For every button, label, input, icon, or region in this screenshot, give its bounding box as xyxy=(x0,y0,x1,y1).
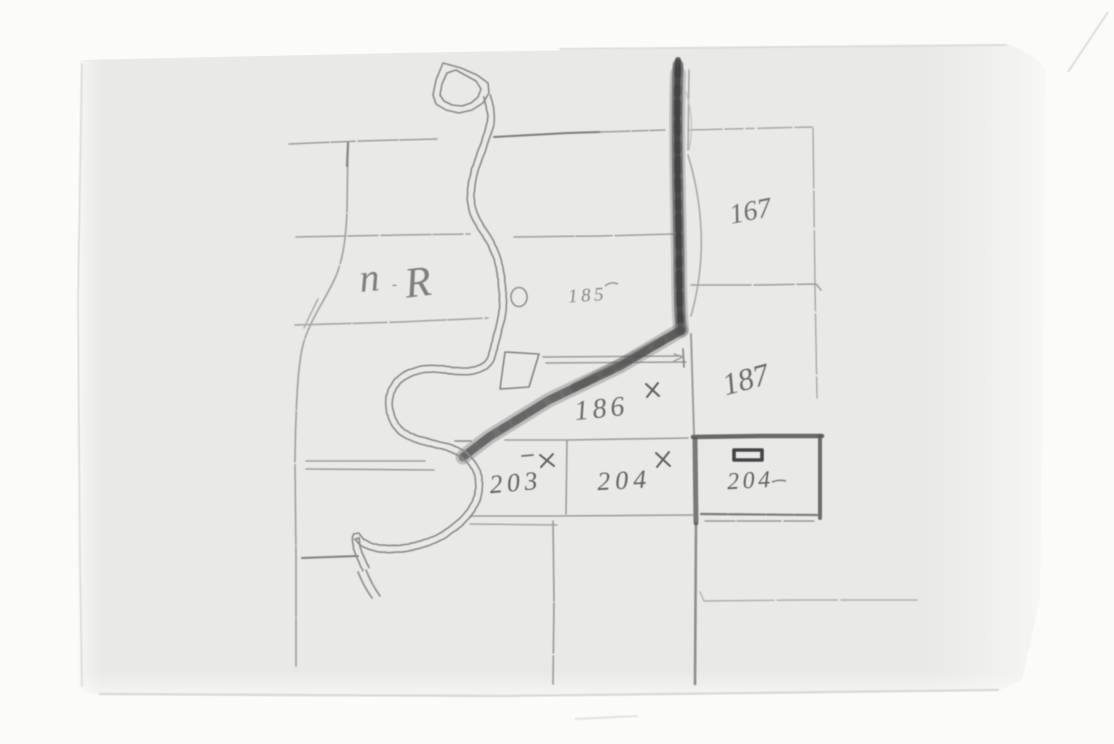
svg-text:n: n xyxy=(357,254,381,301)
svg-text:203: 203 xyxy=(488,466,543,499)
svg-text:186: 186 xyxy=(573,391,630,427)
svg-text:-: - xyxy=(392,277,397,293)
svg-text:185: 185 xyxy=(567,284,607,308)
svg-text:204: 204 xyxy=(596,464,651,496)
svg-text:R: R xyxy=(401,258,434,308)
svg-text:204: 204 xyxy=(727,467,775,495)
